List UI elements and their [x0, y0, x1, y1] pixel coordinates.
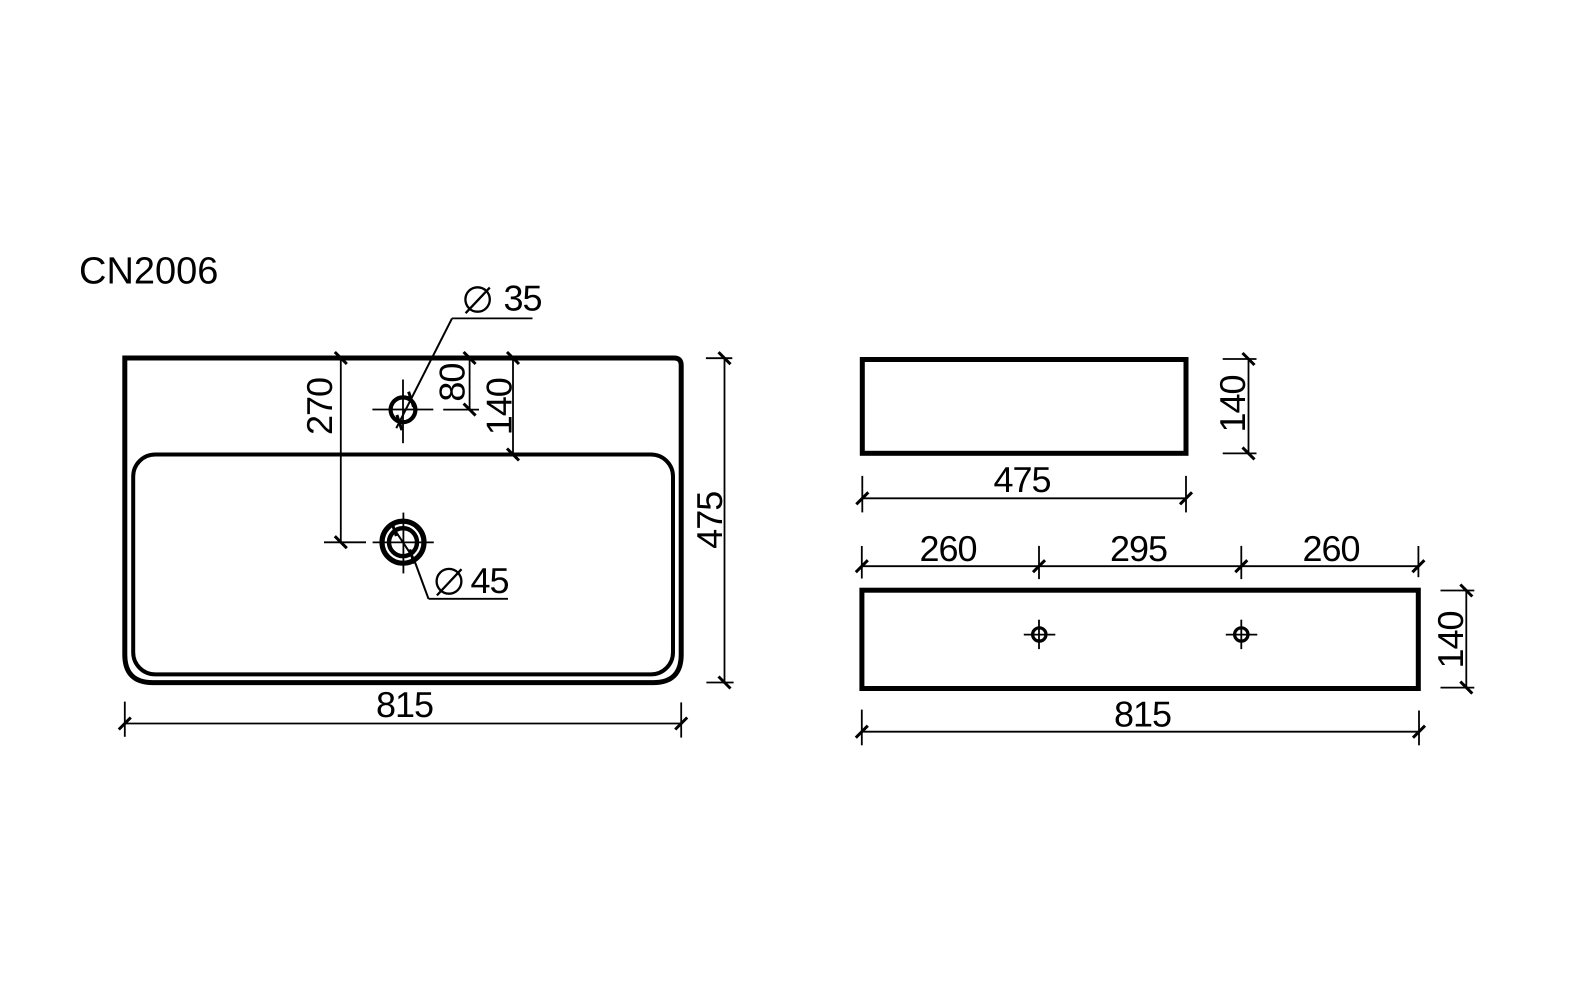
svg-text:45: 45	[471, 560, 509, 601]
svg-text:140: 140	[479, 378, 520, 435]
svg-text:815: 815	[376, 684, 433, 725]
svg-text:260: 260	[1302, 528, 1359, 569]
svg-text:475: 475	[993, 459, 1050, 500]
svg-text:35: 35	[504, 278, 542, 319]
svg-text:260: 260	[919, 528, 976, 569]
svg-text:80: 80	[432, 364, 473, 402]
svg-text:295: 295	[1110, 528, 1167, 569]
svg-text:140: 140	[1212, 375, 1253, 432]
svg-text:815: 815	[1114, 694, 1171, 735]
svg-text:140: 140	[1430, 611, 1471, 668]
svg-text:475: 475	[689, 492, 730, 549]
svg-text:270: 270	[299, 378, 340, 435]
svg-text:CN2006: CN2006	[79, 251, 218, 293]
